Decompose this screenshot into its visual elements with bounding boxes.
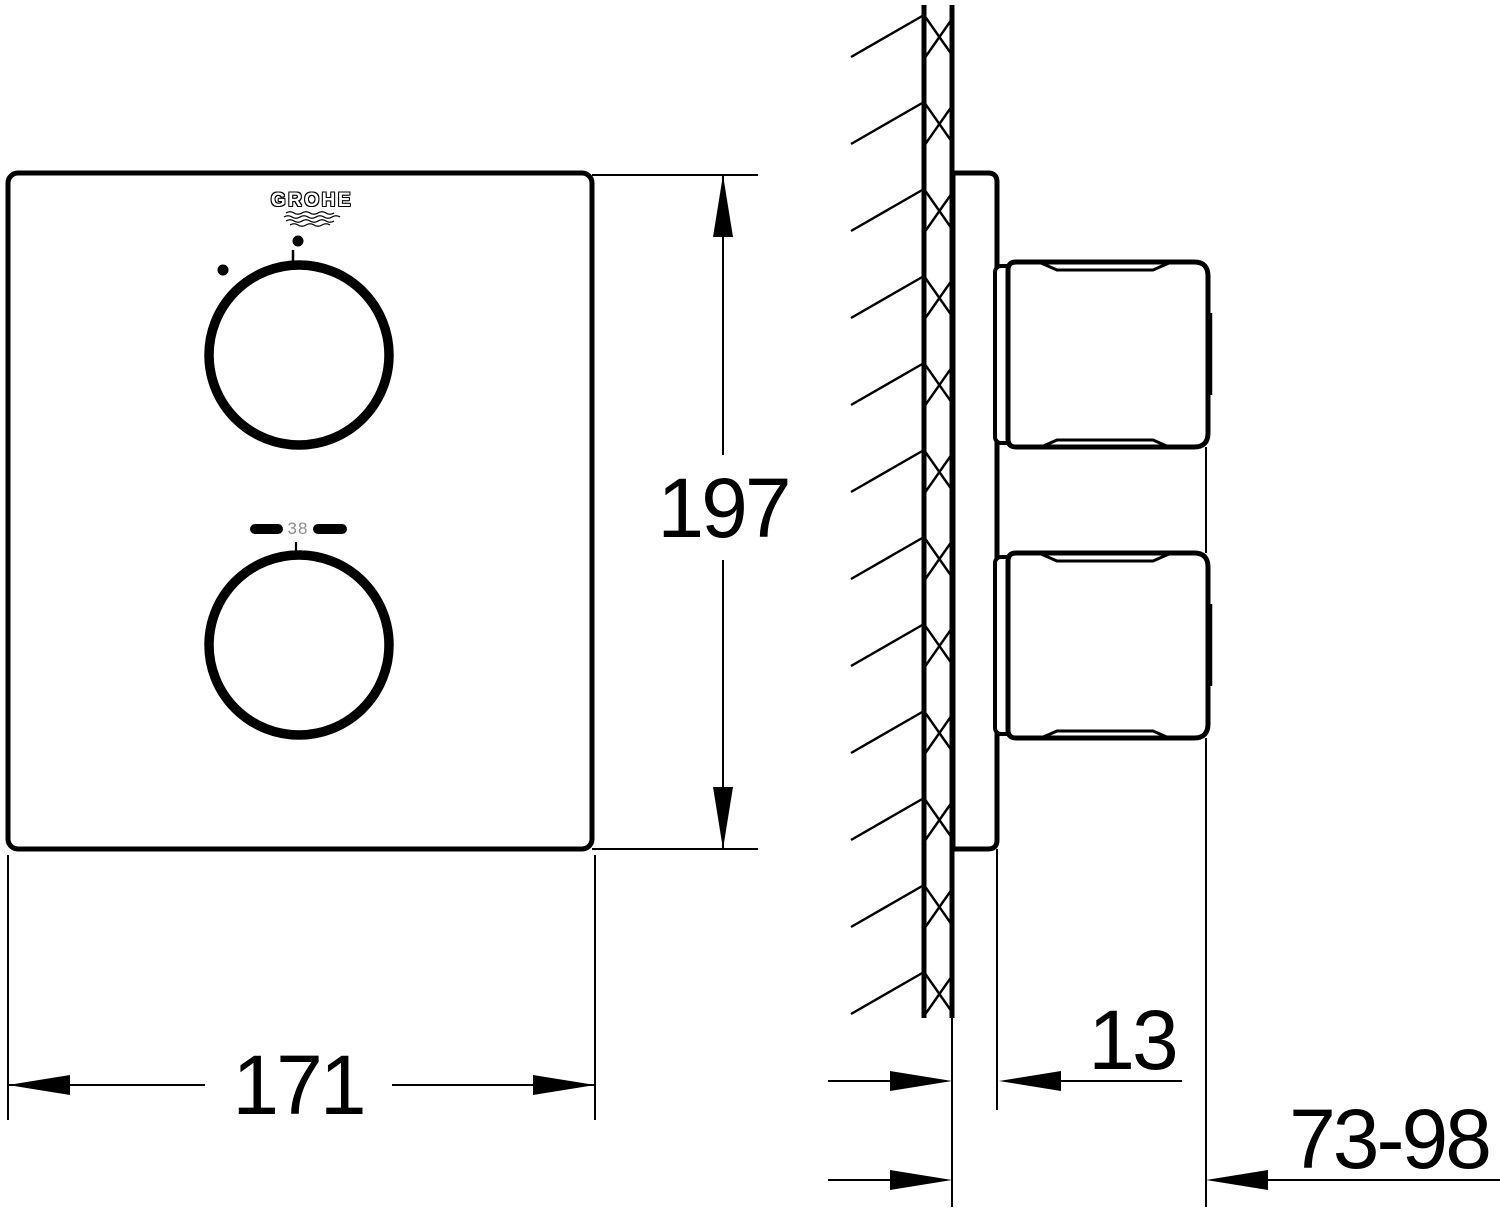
dim-arrow-right — [533, 1075, 595, 1095]
index-dot-left — [218, 265, 229, 276]
dim-arrow-to-wall-13 — [890, 1071, 952, 1091]
dim-arrow-down — [713, 787, 733, 849]
dim-arrow-to-wall-73-98 — [890, 1170, 952, 1190]
side-view — [953, 173, 1211, 849]
temp-38-marking: 38 — [268, 519, 328, 539]
front-plate-outline — [8, 173, 592, 849]
dim-arrow-left — [8, 1075, 70, 1095]
grohe-waves-icon — [282, 211, 342, 229]
wall-section — [924, 5, 952, 1207]
dim-width-label: 171 — [148, 1043, 448, 1127]
technical-drawing-canvas: GROHE 38 197 171 13 73-98 — [0, 0, 1500, 1214]
drawing-linework — [0, 0, 1500, 1214]
index-dot-top — [293, 236, 304, 247]
dim-projection-label: 73-98 — [1239, 1097, 1500, 1181]
tile-hatch-chevrons — [924, 15, 952, 1016]
side-knob-lower — [995, 553, 1211, 738]
dim-arrow-up — [713, 175, 733, 237]
side-plate-outline — [953, 173, 997, 849]
dim-height-label: 197 — [573, 466, 873, 550]
knob-lower-body — [1008, 553, 1208, 738]
side-knob-upper — [995, 262, 1211, 447]
front-view — [8, 173, 592, 849]
knob-upper-body — [1008, 262, 1208, 447]
grohe-logo: GROHE — [252, 191, 372, 211]
dim-depth-label: 13 — [1032, 998, 1232, 1082]
